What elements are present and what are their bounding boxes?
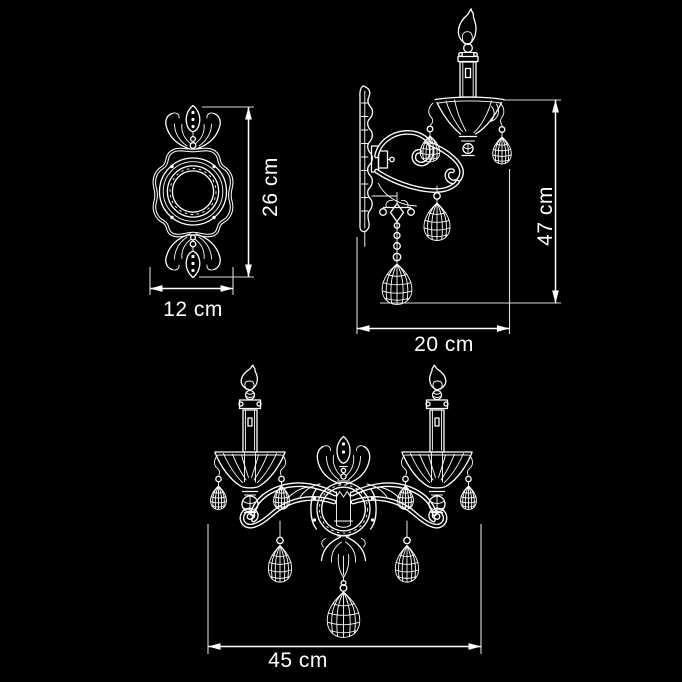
bead-chain <box>372 193 414 305</box>
dimension-arrow <box>208 643 221 650</box>
dimension-arrow <box>150 285 163 292</box>
dimension-backplate-width: 12 cm <box>150 267 233 321</box>
diagram-canvas: 26 cm 12 cm <box>0 0 682 682</box>
dimension-drawing: 26 cm 12 cm <box>0 0 682 682</box>
backplate-height-label: 26 cm <box>259 157 282 217</box>
side-candle <box>458 9 478 97</box>
dimension-arrow <box>357 325 370 332</box>
crystal-drop <box>420 136 440 162</box>
dimension-arrow <box>552 100 559 113</box>
side-height-label: 47 cm <box>534 186 557 246</box>
dimension-arrow <box>552 291 559 304</box>
dimension-front-width: 45 cm <box>208 524 481 672</box>
wall-plate-profile <box>360 86 373 247</box>
dimension-backplate-height: 26 cm <box>199 107 282 277</box>
dimension-arrow <box>469 643 482 650</box>
crystal-drop <box>382 264 412 304</box>
dimension-arrow <box>497 325 510 332</box>
medallion-crest <box>317 437 369 485</box>
side-bobeche <box>435 97 504 155</box>
front-right-branch <box>352 365 476 582</box>
crystal-drop <box>268 546 291 583</box>
side-depth-label: 20 cm <box>414 333 474 356</box>
mounting-bracket <box>372 146 395 172</box>
front-left-branch <box>211 365 335 582</box>
dimension-arrow <box>221 285 234 292</box>
backplate-bottom-ornament <box>166 234 220 278</box>
backplate-cartouche <box>154 150 231 236</box>
backplate-front-view: 26 cm 12 cm <box>150 106 282 322</box>
flame-icon <box>458 9 476 45</box>
backplate-top-ornament <box>166 106 220 150</box>
crystal-drop <box>493 137 512 164</box>
crystal-drop <box>327 592 360 637</box>
sconce-front-view: 45 cm <box>208 365 481 672</box>
center-medallion <box>311 437 376 638</box>
side-scroll-arm <box>377 132 462 206</box>
backplate-ring <box>160 158 227 225</box>
medallion-pendant <box>322 536 366 637</box>
candle-assembly <box>211 365 290 519</box>
sconce-side-view: 47 cm 20 cm <box>357 9 561 356</box>
crystal-drop <box>424 203 450 241</box>
front-width-label: 45 cm <box>268 649 328 672</box>
backplate-width-label: 12 cm <box>163 298 223 321</box>
dimension-arrow <box>245 265 252 278</box>
dimension-arrow <box>245 107 252 120</box>
dimension-side-depth: 20 cm <box>357 169 510 356</box>
side-crystal-drops <box>420 103 511 241</box>
